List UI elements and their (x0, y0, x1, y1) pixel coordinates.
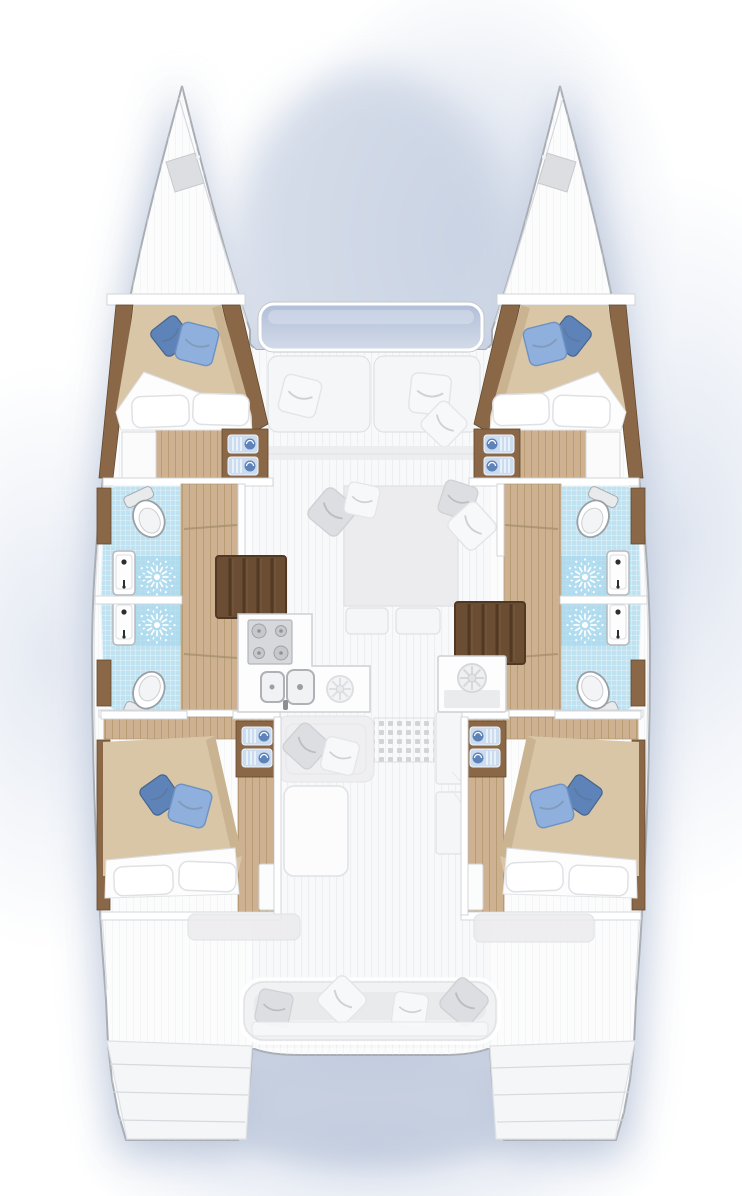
saloon-stool (346, 608, 388, 634)
starboard-stairs (455, 602, 525, 664)
sofa-pillow (343, 481, 381, 519)
helm-console (436, 712, 464, 784)
cockpit-locker (188, 914, 300, 940)
laundry-appliance (438, 656, 506, 712)
cockpit-table (252, 1022, 488, 1036)
port-stairs (216, 556, 286, 618)
galley-vent (327, 676, 353, 702)
catamaran-floorplan (0, 0, 742, 1196)
nav-table (284, 786, 348, 876)
sofa-backrest (264, 446, 478, 460)
companionway-doormat (374, 718, 434, 762)
saloon-stool (396, 608, 440, 634)
seat-pillow (277, 373, 323, 419)
cooktop (248, 620, 292, 664)
forward-window (258, 302, 484, 352)
floorplan-canvas (0, 0, 742, 1196)
cockpit-locker (474, 914, 594, 942)
galley-faucet (283, 700, 288, 710)
sofa-pillow (319, 735, 360, 776)
